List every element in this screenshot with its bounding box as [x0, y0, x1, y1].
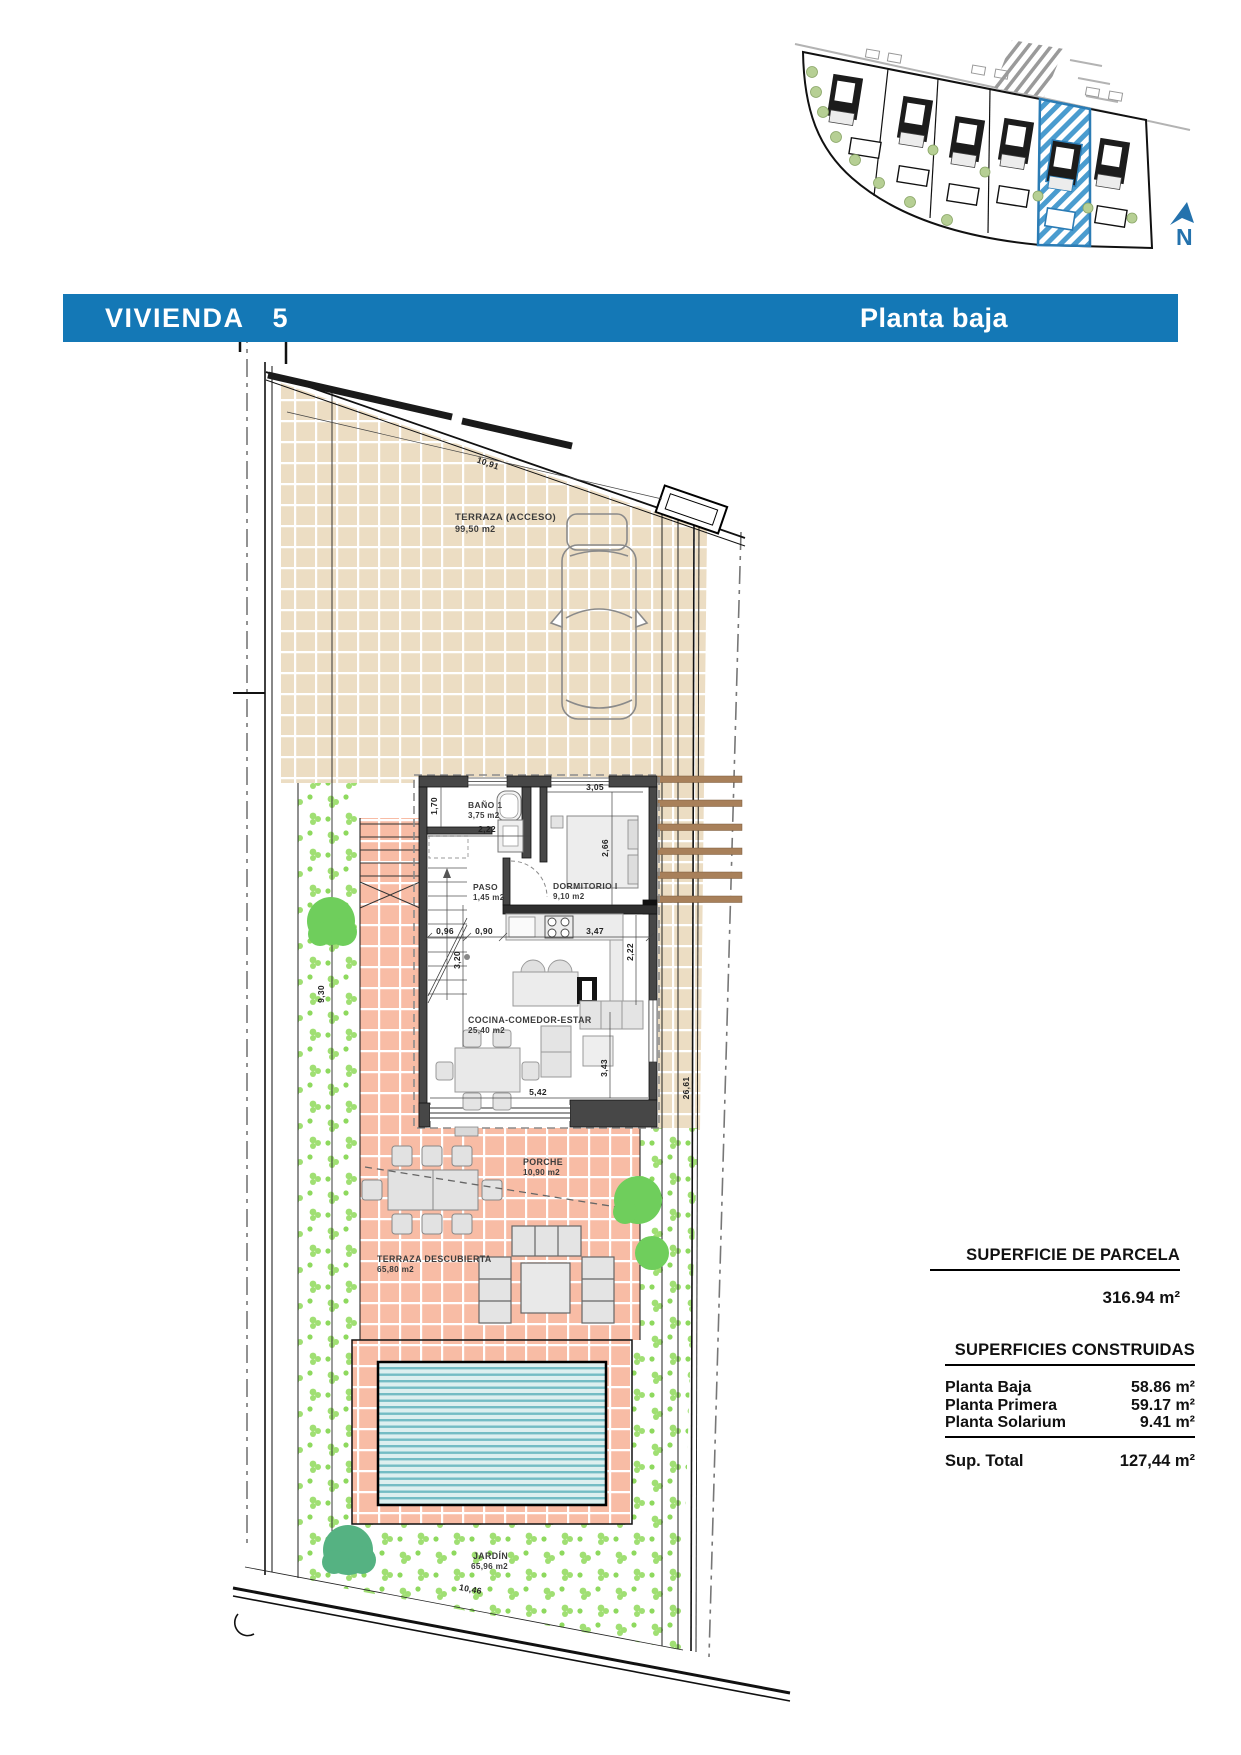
svg-text:65,96 m2: 65,96 m2 — [471, 1562, 508, 1571]
svg-text:99,50 m2: 99,50 m2 — [455, 524, 495, 534]
built-areas-rows: Planta Baja 58.86 m² Planta Primera 59.1… — [945, 1379, 1195, 1438]
floor-plan: TERRAZA (ACCESO) 99,50 m2 BAÑO 1 3,75 m2… — [233, 325, 790, 1701]
swimming-pool — [378, 1362, 606, 1505]
built-areas-summary: SUPERFICIES CONSTRUIDAS Planta Baja 58.8… — [945, 1341, 1195, 1471]
svg-text:65,80 m2: 65,80 m2 — [377, 1265, 414, 1274]
north-arrow-icon — [1170, 202, 1194, 225]
dimension: 2,22 — [478, 824, 496, 834]
dimension: 2,66 — [600, 839, 610, 857]
table-row: Planta Baja 58.86 m² — [945, 1379, 1195, 1397]
title-bar: VIVIENDA 5 Planta baja — [63, 294, 1178, 342]
dimension: 9,30 — [316, 985, 326, 1003]
north-label: N — [1176, 224, 1193, 250]
dimension: 5,42 — [529, 1087, 547, 1097]
svg-text:10,90 m2: 10,90 m2 — [523, 1168, 560, 1177]
built-areas-heading: SUPERFICIES CONSTRUIDAS — [945, 1341, 1195, 1366]
svg-text:1,45 m2: 1,45 m2 — [473, 893, 505, 902]
dimension: 3,43 — [599, 1059, 609, 1077]
row-value: 59.17 m² — [1131, 1397, 1195, 1415]
room-label: DORMITORIO I — [553, 881, 618, 891]
row-value: 9.41 m² — [1140, 1414, 1195, 1432]
total-row: Sup. Total 127,44 m² — [945, 1452, 1195, 1471]
dimension: 3,20 — [452, 951, 462, 969]
dimension: 2,22 — [625, 943, 635, 961]
dimension: 0,90 — [475, 926, 493, 936]
dimension: 1,70 — [429, 797, 439, 815]
dimension: 3,05 — [586, 782, 604, 792]
room-label: PORCHE — [523, 1157, 563, 1167]
row-value: 58.86 m² — [1131, 1379, 1195, 1397]
room-label: TERRAZA (ACCESO) — [455, 512, 556, 523]
parcela-summary: SUPERFICIE DE PARCELA 316.94 m² — [930, 1246, 1180, 1308]
dwelling-name: VIVIENDA — [105, 303, 245, 334]
dimension: 3,47 — [586, 926, 604, 936]
svg-text:3,75 m2: 3,75 m2 — [468, 811, 500, 820]
floor-label: Planta baja — [860, 303, 1008, 334]
parcela-heading: SUPERFICIE DE PARCELA — [930, 1246, 1180, 1271]
dwelling-title: VIVIENDA 5 — [105, 303, 289, 334]
room-label: COCINA-COMEDOR-ESTAR — [468, 1015, 592, 1025]
dimension: 26,61 — [681, 1077, 691, 1100]
parcela-value: 316.94 m² — [930, 1288, 1180, 1308]
total-label: Sup. Total — [945, 1452, 1024, 1471]
row-label: Planta Solarium — [945, 1414, 1066, 1432]
side-terrace-tiles — [360, 818, 420, 1128]
svg-text:9,10 m2: 9,10 m2 — [553, 892, 585, 901]
dwelling-number: 5 — [273, 303, 290, 334]
road-hatch — [994, 40, 1064, 97]
table-row: Planta Solarium 9.41 m² — [945, 1414, 1195, 1432]
road-marks — [1070, 60, 1118, 102]
total-value: 127,44 m² — [1120, 1452, 1195, 1471]
row-label: Planta Primera — [945, 1397, 1057, 1415]
room-label: BAÑO 1 — [468, 800, 503, 810]
svg-text:25,40 m2: 25,40 m2 — [468, 1026, 505, 1035]
table-row: Planta Primera 59.17 m² — [945, 1397, 1195, 1415]
room-label: JARDÍN — [473, 1551, 508, 1561]
tree-icon — [635, 1236, 669, 1270]
plan-sheet: N — [0, 0, 1241, 1755]
room-label: TERRAZA DESCUBIERTA — [377, 1254, 492, 1264]
north-arrow: N — [1170, 202, 1194, 250]
dimension: 0,96 — [436, 926, 454, 936]
drawing-canvas: N — [0, 0, 1241, 1755]
room-label: PASO — [473, 882, 498, 892]
site-plan: N — [795, 40, 1194, 250]
row-label: Planta Baja — [945, 1379, 1031, 1397]
